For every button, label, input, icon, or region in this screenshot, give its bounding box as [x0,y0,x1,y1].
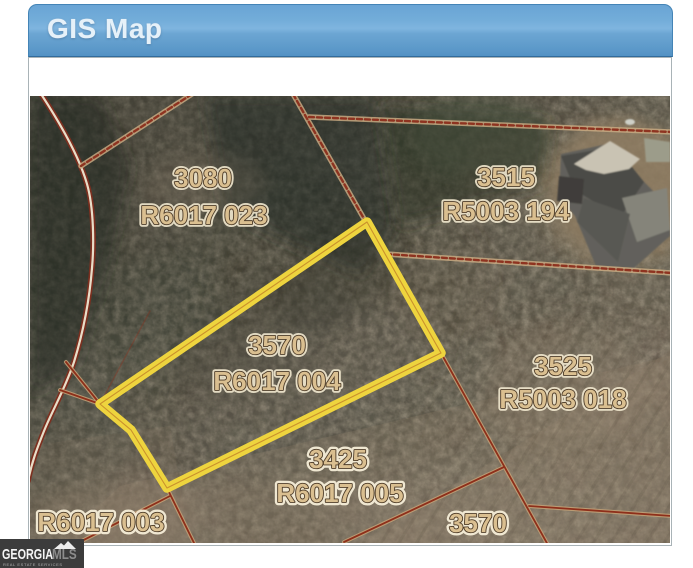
svg-text:R5003 194: R5003 194 [442,196,570,226]
svg-text:R5003 018: R5003 018 [499,384,626,414]
svg-text:R6017 005: R6017 005 [276,478,403,508]
svg-text:3515: 3515 [477,162,535,192]
svg-text:3525: 3525 [534,351,592,381]
svg-text:R6017 003: R6017 003 [37,507,164,537]
svg-text:3570: 3570 [248,330,306,360]
svg-text:3425: 3425 [309,444,367,474]
svg-text:3080: 3080 [174,163,232,193]
svg-text:R6017 004: R6017 004 [213,366,341,396]
svg-text:3570: 3570 [449,508,507,538]
svg-text:R6017 023: R6017 023 [140,200,267,230]
